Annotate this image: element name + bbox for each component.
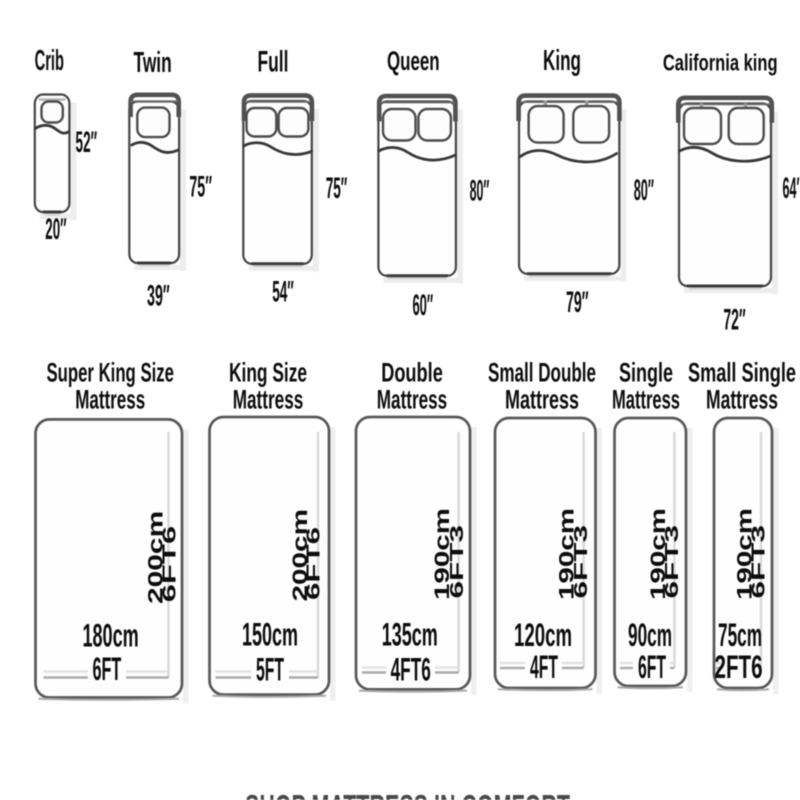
svg-text:Mattress: Mattress: [612, 384, 680, 414]
svg-text:52″: 52″: [76, 126, 98, 159]
svg-text:20″: 20″: [45, 212, 66, 245]
svg-text:64″: 64″: [783, 172, 800, 205]
svg-text:2FT6: 2FT6: [715, 648, 763, 686]
svg-text:Single: Single: [619, 357, 673, 387]
svg-text:Full: Full: [258, 47, 289, 79]
svg-text:Small Single: Small Single: [688, 357, 796, 387]
svg-text:5FT: 5FT: [256, 651, 284, 689]
svg-text:80″: 80″: [634, 174, 654, 207]
svg-text:King Size: King Size: [229, 357, 307, 387]
svg-text:Double: Double: [381, 357, 443, 387]
svg-text:6FT: 6FT: [93, 650, 122, 688]
svg-text:54″: 54″: [272, 275, 294, 308]
svg-text:Mattress: Mattress: [75, 384, 145, 414]
svg-text:Mattress: Mattress: [706, 384, 778, 414]
svg-text:39″: 39″: [147, 279, 170, 312]
svg-text:6FT6: 6FT6: [159, 525, 180, 602]
svg-text:72″: 72″: [723, 303, 745, 336]
svg-text:Mattress: Mattress: [505, 384, 579, 414]
svg-text:California king: California king: [663, 51, 778, 77]
svg-text:6FT3: 6FT3: [447, 525, 468, 599]
svg-text:4FT6: 4FT6: [391, 651, 431, 689]
svg-text:6FT6: 6FT6: [303, 527, 324, 600]
svg-text:60″: 60″: [412, 289, 433, 322]
svg-text:79″: 79″: [566, 285, 589, 318]
svg-text:135cm: 135cm: [382, 616, 438, 654]
svg-text:6FT: 6FT: [638, 648, 666, 686]
svg-text:Super King Size: Super King Size: [46, 357, 174, 387]
svg-text:6FT3: 6FT3: [571, 525, 592, 599]
svg-text:6FT3: 6FT3: [662, 525, 683, 599]
svg-text:75″: 75″: [326, 172, 348, 205]
svg-text:4FT: 4FT: [530, 648, 558, 686]
svg-text:Queen: Queen: [387, 45, 440, 75]
svg-text:80″: 80″: [470, 174, 490, 207]
svg-text:150cm: 150cm: [242, 616, 298, 654]
svg-text:Small Double: Small Double: [488, 357, 596, 387]
svg-text:75″: 75″: [189, 170, 212, 203]
svg-text:Mattress: Mattress: [377, 384, 447, 414]
svg-text:180cm: 180cm: [82, 616, 138, 654]
svg-text:SHOP MATTRESS IN COMFORT: SHOP MATTRESS IN COMFORT: [245, 789, 570, 800]
svg-text:King: King: [543, 44, 581, 76]
svg-text:Crib: Crib: [35, 44, 64, 76]
svg-text:Mattress: Mattress: [233, 384, 304, 414]
svg-text:6FT3: 6FT3: [748, 525, 769, 599]
svg-text:Twin: Twin: [134, 46, 172, 78]
